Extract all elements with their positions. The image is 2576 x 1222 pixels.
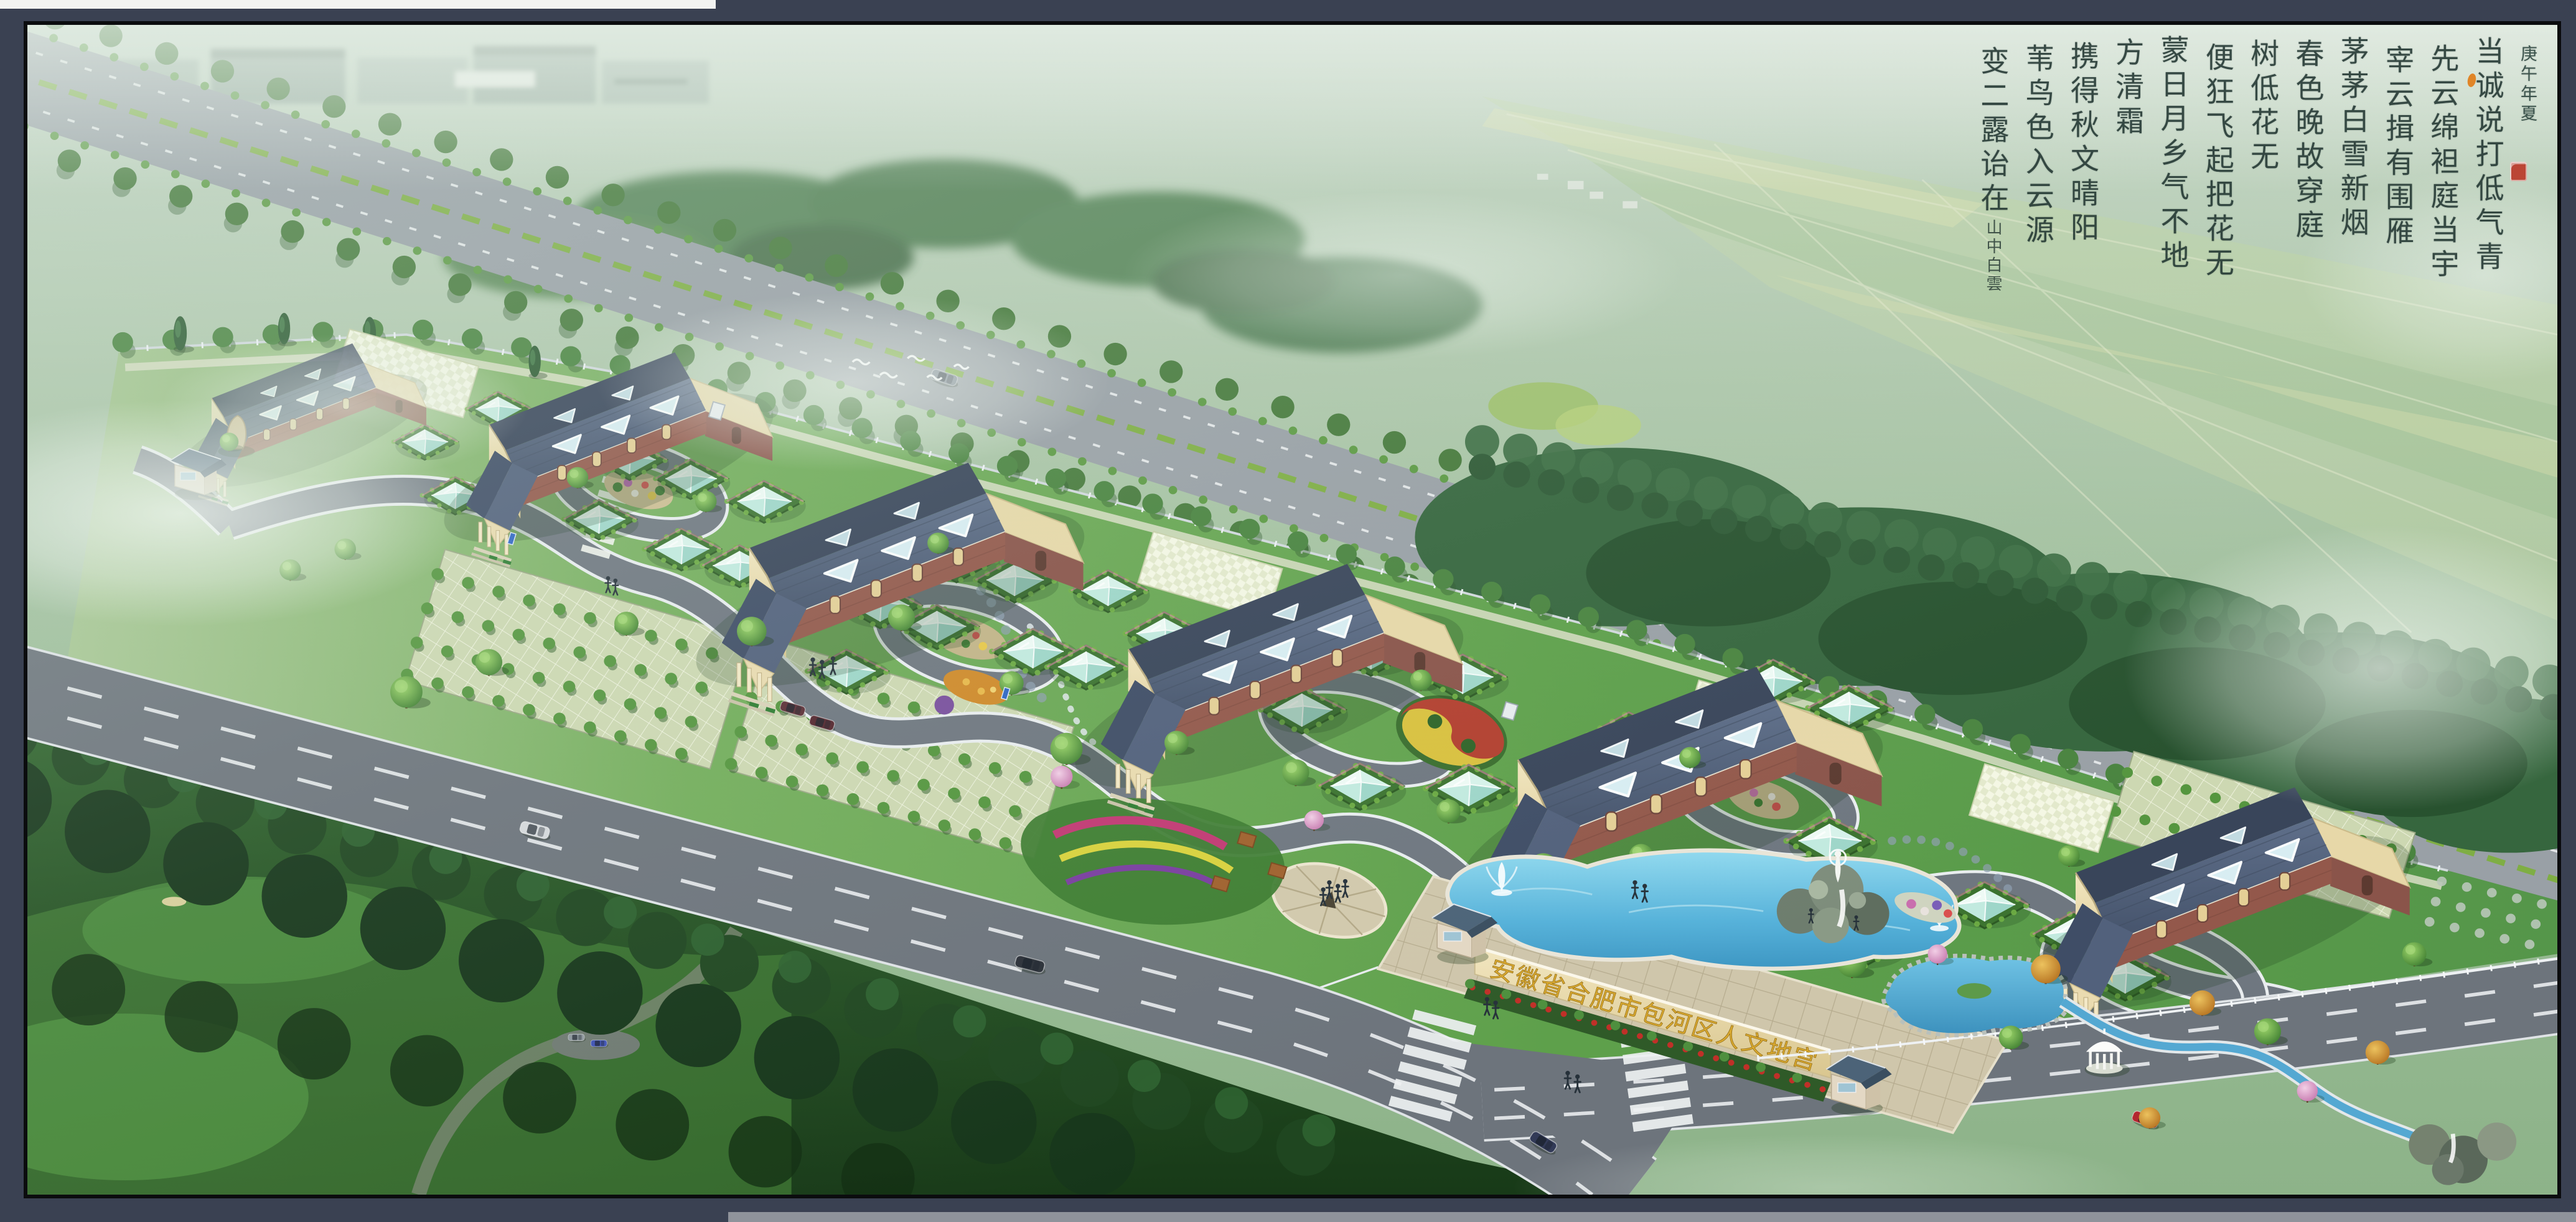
frame-bottom-light-strip xyxy=(728,1212,2576,1222)
car xyxy=(591,1040,608,1048)
car xyxy=(568,1034,586,1042)
frame-top-white-strip xyxy=(0,0,716,9)
purple-shrub xyxy=(934,696,953,715)
pond-islet xyxy=(1957,983,1992,999)
master-plan-rendering: 安徽省合肥市包河区人文地宫 xyxy=(27,25,2557,1195)
rendering-frame: 安徽省合肥市包河区人文地宫 xyxy=(0,0,2576,1222)
master-plan-scene: 安徽省合肥市包河区人文地宫 xyxy=(27,25,2557,1195)
